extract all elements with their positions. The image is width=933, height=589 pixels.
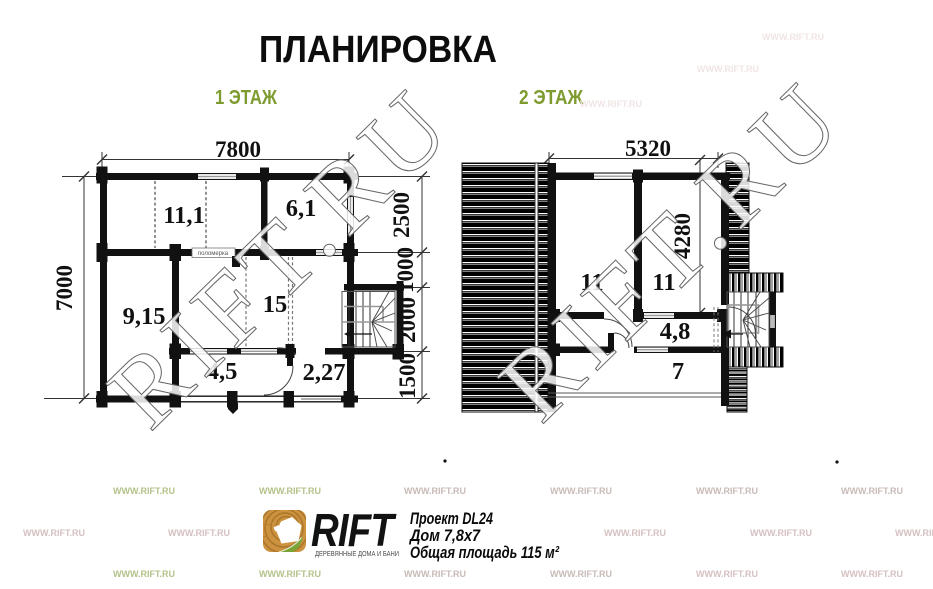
svg-text:7800: 7800	[215, 137, 261, 162]
svg-text:ДЕРЕВЯННЫЕ ДОМА И БАНИ: ДЕРЕВЯННЫЕ ДОМА И БАНИ	[315, 549, 399, 558]
svg-text:5320: 5320	[625, 136, 671, 161]
svg-text:ПЛАНИРОВКА: ПЛАНИРОВКА	[259, 29, 497, 71]
svg-text:WWW.RIFT.RU: WWW.RIFT.RU	[113, 486, 175, 496]
svg-text:Общая площадь 115 м²: Общая площадь 115 м²	[410, 544, 559, 562]
svg-text:WWW.RIFT.RU: WWW.RIFT.RU	[580, 99, 642, 109]
svg-text:WWW.RIFT.RU: WWW.RIFT.RU	[550, 486, 612, 496]
svg-text:WWW.RIFT.RU: WWW.RIFT.RU	[750, 528, 812, 538]
svg-text:WWW.RIFT.RU: WWW.RIFT.RU	[696, 569, 758, 579]
svg-text:WWW.RIFT.RU: WWW.RIFT.RU	[841, 569, 903, 579]
svg-text:7000: 7000	[52, 265, 77, 311]
svg-text:2,27: 2,27	[303, 359, 346, 386]
svg-text:WWW.RIFT.RU: WWW.RIFT.RU	[841, 486, 903, 496]
svg-text:WWW.RIFT.RU: WWW.RIFT.RU	[697, 64, 759, 74]
svg-text:2 ЭТАЖ: 2 ЭТАЖ	[519, 87, 584, 109]
svg-text:WWW.RIFT.RU: WWW.RIFT.RU	[404, 486, 466, 496]
svg-text:WWW.RIFT.RU: WWW.RIFT.RU	[762, 32, 824, 42]
svg-text:WWW.RIFT.RU: WWW.RIFT.RU	[259, 486, 321, 496]
svg-text:WWW.RIFT.RU: WWW.RIFT.RU	[550, 569, 612, 579]
svg-text:WWW.RIFT.RU: WWW.RIFT.RU	[895, 528, 933, 538]
svg-text:WWW.RIFT.RU: WWW.RIFT.RU	[168, 528, 230, 538]
svg-text:WWW.RIFT.RU: WWW.RIFT.RU	[23, 528, 85, 538]
svg-text:WWW.RIFT.RU: WWW.RIFT.RU	[696, 486, 758, 496]
svg-text:WWW.RIFT.RU: WWW.RIFT.RU	[259, 569, 321, 579]
svg-text:Проект DL24: Проект DL24	[410, 510, 493, 528]
svg-text:7: 7	[672, 358, 684, 385]
svg-text:WWW.RIFT.RU: WWW.RIFT.RU	[604, 528, 666, 538]
svg-text:11,1: 11,1	[163, 202, 205, 229]
svg-text:1500: 1500	[395, 353, 420, 399]
svg-text:WWW.RIFT.RU: WWW.RIFT.RU	[404, 569, 466, 579]
svg-text:1 ЭТАЖ: 1 ЭТАЖ	[215, 87, 278, 109]
svg-text:Дом 7,8х7: Дом 7,8х7	[408, 527, 480, 545]
svg-text:WWW.RIFT.RU: WWW.RIFT.RU	[113, 569, 175, 579]
